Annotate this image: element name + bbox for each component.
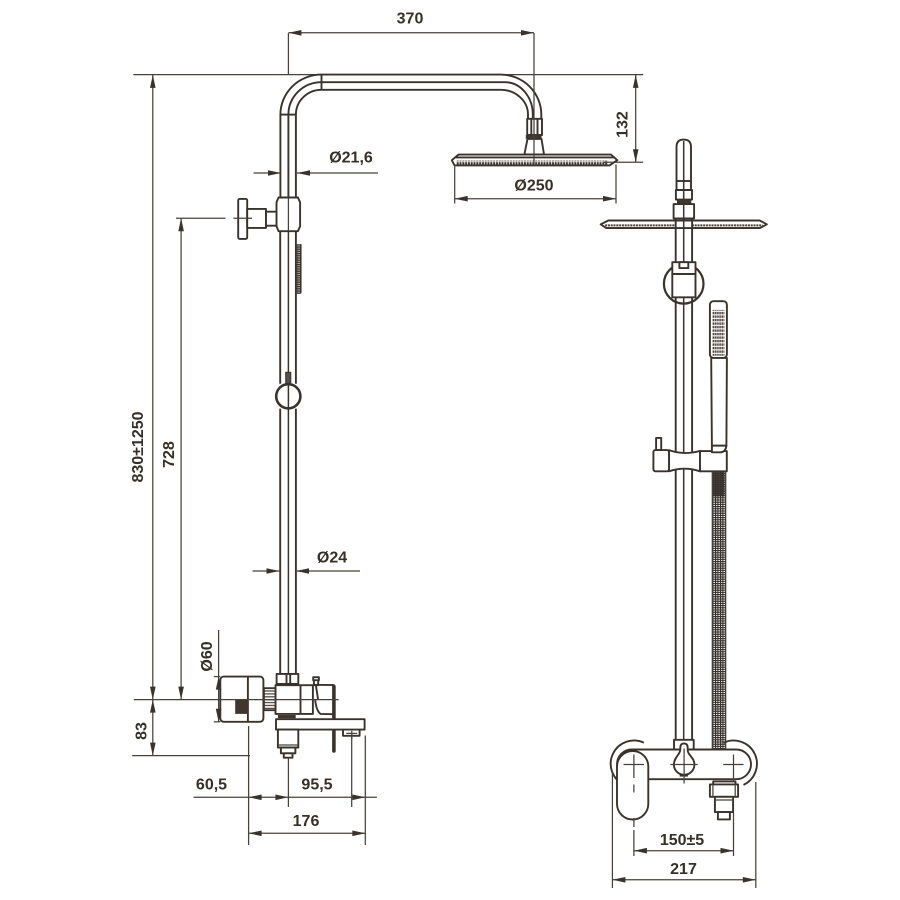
svg-text:830±1250: 830±1250 xyxy=(130,411,147,482)
svg-text:728: 728 xyxy=(161,441,178,468)
svg-text:370: 370 xyxy=(397,11,424,28)
svg-text:132: 132 xyxy=(615,111,632,138)
svg-text:83: 83 xyxy=(134,722,151,740)
svg-text:176: 176 xyxy=(293,813,320,830)
svg-text:Ø250: Ø250 xyxy=(514,178,553,195)
svg-text:Ø24: Ø24 xyxy=(317,550,347,567)
svg-text:Ø60: Ø60 xyxy=(199,641,216,671)
svg-text:150±5: 150±5 xyxy=(660,832,704,849)
svg-text:Ø21,6: Ø21,6 xyxy=(329,150,373,167)
svg-text:60,5: 60,5 xyxy=(196,777,227,794)
svg-text:217: 217 xyxy=(670,861,697,878)
svg-text:95,5: 95,5 xyxy=(301,777,332,794)
